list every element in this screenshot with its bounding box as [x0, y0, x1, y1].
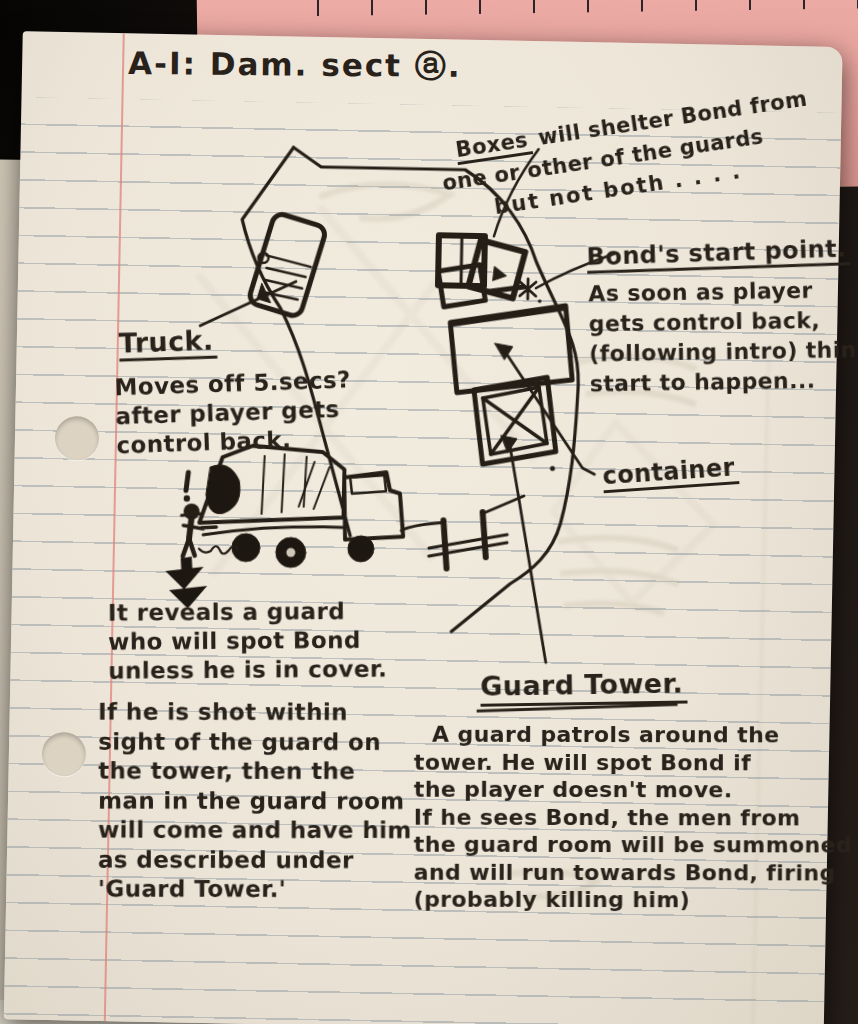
note-line: start to happen... — [590, 365, 858, 400]
gate-icon — [401, 494, 524, 570]
note-line: 'Guard Tower.' — [98, 875, 412, 905]
note-line: As soon as player — [588, 275, 858, 310]
note-line: (following intro) things — [589, 335, 858, 370]
note-line: the guard room will be summoned — [414, 831, 852, 859]
label-guard-tower: Guard Tower. — [480, 668, 687, 707]
page-title: A-I: Dam. sect ⓐ. — [128, 43, 462, 88]
note-line: unless he is in cover. — [108, 655, 387, 686]
note-truck: Moves off 5.secs? after player gets cont… — [114, 365, 353, 460]
note-line: gets control back, — [589, 305, 858, 340]
note-guard-tower: A guard patrols around the tower. He wil… — [414, 721, 853, 914]
note-line: A guard patrols around the — [432, 721, 852, 749]
note-line: as described under — [98, 845, 412, 875]
note-line: sight of the guard on — [98, 727, 412, 757]
note-line: will come and have him — [98, 816, 412, 846]
note-reveal-guard: It reveals a guard who will spot Bond un… — [108, 597, 388, 686]
note-line: If he sees Bond, the men from — [414, 803, 852, 831]
note-line: (probably killing him) — [414, 886, 852, 914]
note-line: tower. He will spot Bond if — [414, 748, 852, 776]
note-line: the tower, then the — [98, 757, 412, 787]
photo-scene: A-I: Dam. sect ⓐ. Boxes will shelter Bon… — [0, 0, 858, 1024]
note-line: and will run towards Bond, firing — [414, 858, 852, 886]
note-line: man in the guard room — [98, 786, 412, 816]
leader-line-truck — [200, 280, 296, 328]
note-line: the player doesn't move. — [414, 776, 852, 804]
note-line: who will spot Bond — [108, 626, 387, 657]
crate-icon — [472, 376, 557, 471]
ruler-tick-marks — [317, 0, 858, 16]
label-text: Truck. — [118, 324, 217, 361]
label-truck: Truck. — [118, 324, 217, 358]
note-if-shot: If he is shot within sight of the guard … — [98, 698, 412, 905]
notebook-page: A-I: Dam. sect ⓐ. Boxes will shelter Bon… — [4, 31, 843, 1024]
boxes-icon — [438, 235, 526, 308]
note-line: It reveals a guard — [108, 597, 387, 628]
asterisk-icon — [520, 279, 542, 303]
note-bond-start: As soon as player gets control back, (fo… — [588, 275, 858, 400]
label-text: Guard Tower. — [480, 668, 687, 707]
note-line: If he is shot within — [98, 698, 412, 728]
truck-top-view-icon — [247, 212, 327, 319]
